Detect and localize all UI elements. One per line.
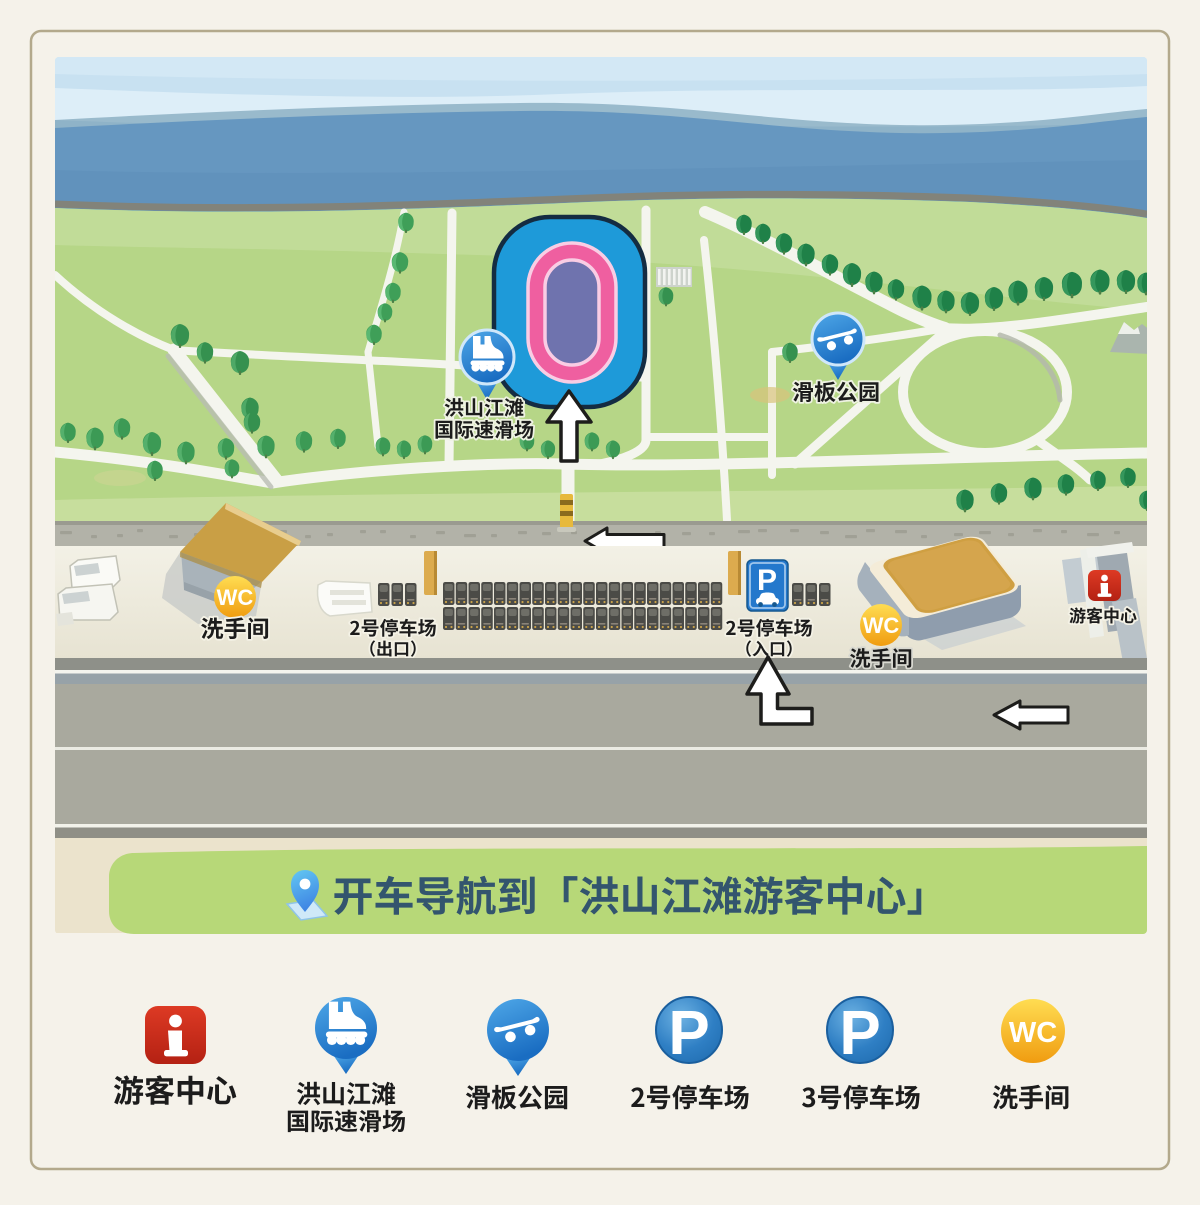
svg-text:P: P [668, 999, 709, 1068]
svg-text:WC: WC [1009, 1017, 1057, 1049]
svg-text:P: P [757, 564, 777, 597]
svg-text:WC: WC [863, 613, 900, 638]
svg-text:P: P [839, 999, 880, 1068]
svg-text:WC: WC [217, 585, 254, 610]
